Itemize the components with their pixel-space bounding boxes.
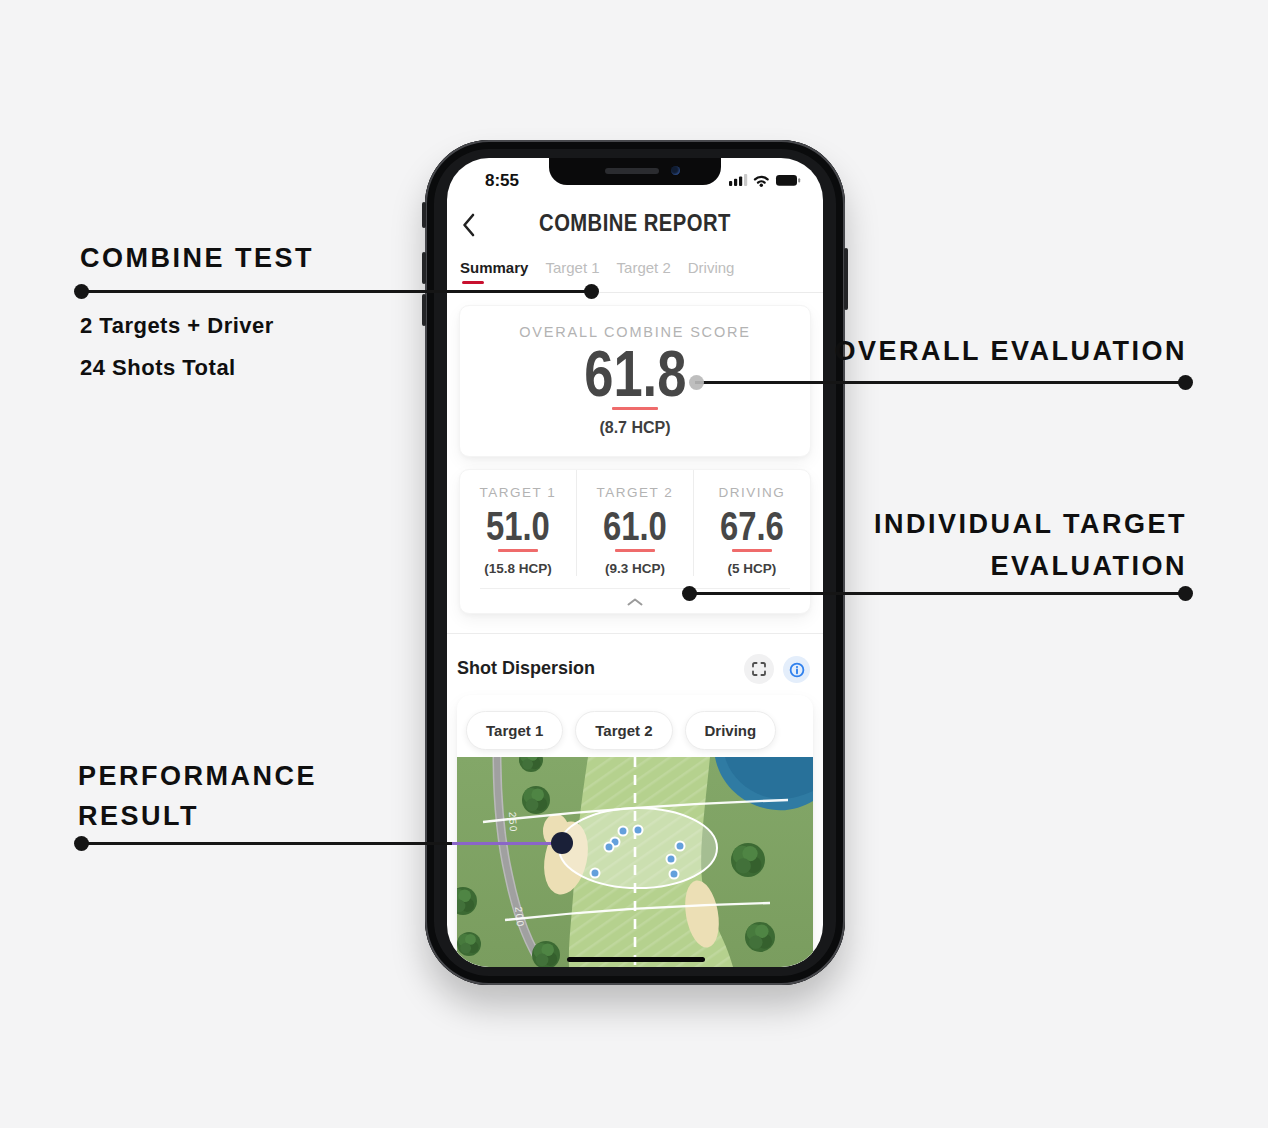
connector-dot: [689, 375, 704, 390]
target-2-score: 61.0: [577, 506, 693, 546]
info-icon: [789, 662, 805, 678]
connector-dot: [1178, 375, 1193, 390]
overall-score-value: 61.8: [460, 343, 810, 405]
tab-target-1[interactable]: Target 1: [545, 259, 599, 276]
shot-dot: [670, 870, 679, 879]
score-underline: [615, 549, 655, 552]
filter-driving[interactable]: Driving: [685, 711, 777, 750]
target-2-hcp: (9.3 HCP): [577, 561, 693, 576]
filter-pills: Target 1 Target 2 Driving: [466, 711, 776, 750]
connector-dot: [74, 836, 89, 851]
home-indicator[interactable]: [567, 957, 705, 962]
connector-combine-test: [80, 290, 593, 293]
shot-dot: [591, 869, 600, 878]
mute-switch: [422, 202, 426, 228]
target-1-label: TARGET 1: [460, 485, 576, 500]
driving-score: 67.6: [694, 506, 810, 546]
power-button: [844, 248, 848, 310]
divider: [447, 633, 823, 634]
performance-line2: RESULT: [78, 796, 317, 836]
tab-bar: Summary Target 1 Target 2 Driving: [460, 259, 734, 276]
driving-hcp: (5 HCP): [694, 561, 810, 576]
shot-dot: [667, 855, 676, 864]
shot-dot: [605, 843, 614, 852]
driving-column: DRIVING 67.6 (5 HCP): [693, 470, 810, 576]
tab-target-2[interactable]: Target 2: [617, 259, 671, 276]
connector-dot: [74, 284, 89, 299]
overall-evaluation-label: OVERALL EVALUATION: [834, 336, 1187, 367]
canvas: COMBINE TEST 2 Targets + Driver 24 Shots…: [0, 0, 1268, 1128]
target-2-label: TARGET 2: [577, 485, 693, 500]
shot-dot: [634, 826, 643, 835]
info-button[interactable]: [783, 656, 810, 683]
volume-down-button: [422, 294, 426, 326]
driving-label: DRIVING: [694, 485, 810, 500]
phone-screen: 8:55: [447, 158, 823, 967]
shot-dot: [619, 827, 628, 836]
target-2-column: TARGET 2 61.0 (9.3 HCP): [576, 470, 693, 576]
target-columns: TARGET 1 51.0 (15.8 HCP) TARGET 2 61.0 (…: [460, 470, 810, 576]
speaker-grille: [605, 168, 659, 174]
fullscreen-button[interactable]: [744, 654, 774, 684]
connector-performance-map-segment: [452, 842, 563, 845]
shot-dispersion-card: Target 1 Target 2 Driving: [457, 695, 813, 967]
connector-overall-evaluation: [695, 381, 1187, 384]
status-icons: [729, 173, 801, 191]
notch: [549, 158, 721, 185]
target-1-column: TARGET 1 51.0 (15.8 HCP): [460, 470, 576, 576]
connector-map-endpoint-dot: [551, 832, 573, 854]
shot-dot: [676, 842, 685, 851]
connector-dot: [584, 284, 599, 299]
distance-label: 250: [507, 812, 519, 834]
phone-frame: 8:55: [425, 140, 845, 985]
individual-evaluation-line2: EVALUATION: [874, 545, 1187, 587]
fullscreen-icon: [752, 662, 766, 676]
score-underline: [498, 549, 538, 552]
dispersion-map: 250200: [457, 757, 813, 967]
combine-test-label: COMBINE TEST: [80, 243, 314, 274]
tab-summary[interactable]: Summary: [460, 259, 528, 276]
wifi-icon: [755, 177, 768, 187]
filter-target-2[interactable]: Target 2: [575, 711, 672, 750]
connector-individual-evaluation: [688, 592, 1187, 595]
overall-hcp: (8.7 HCP): [460, 419, 810, 437]
tab-driving[interactable]: Driving: [688, 259, 735, 276]
performance-result-label: PERFORMANCE RESULT: [78, 756, 317, 836]
connector-dot: [682, 586, 697, 601]
performance-line1: PERFORMANCE: [78, 756, 317, 796]
individual-evaluation-label: INDIVIDUAL TARGET EVALUATION: [874, 503, 1187, 587]
connector-dot: [1178, 586, 1193, 601]
target-1-hcp: (15.8 HCP): [460, 561, 576, 576]
score-underline: [732, 549, 772, 552]
individual-evaluation-line1: INDIVIDUAL TARGET: [874, 503, 1187, 545]
combine-test-subtitle-1: 2 Targets + Driver: [80, 313, 274, 339]
chevron-up-icon: [627, 598, 643, 606]
target-1-score: 51.0: [460, 506, 576, 546]
shot-dispersion-title: Shot Dispersion: [457, 658, 595, 679]
combine-test-subtitle-2: 24 Shots Total: [80, 355, 236, 381]
volume-up-button: [422, 252, 426, 284]
battery-icon: [776, 175, 800, 186]
filter-target-1[interactable]: Target 1: [466, 711, 563, 750]
front-camera: [671, 166, 680, 175]
page-title: COMBINE REPORT: [447, 210, 823, 237]
app-header: COMBINE REPORT: [447, 204, 823, 248]
connector-performance: [80, 842, 452, 845]
status-time: 8:55: [485, 171, 519, 191]
dispersion-ellipse: [559, 808, 717, 888]
cellular-signal-icon: [729, 174, 747, 186]
